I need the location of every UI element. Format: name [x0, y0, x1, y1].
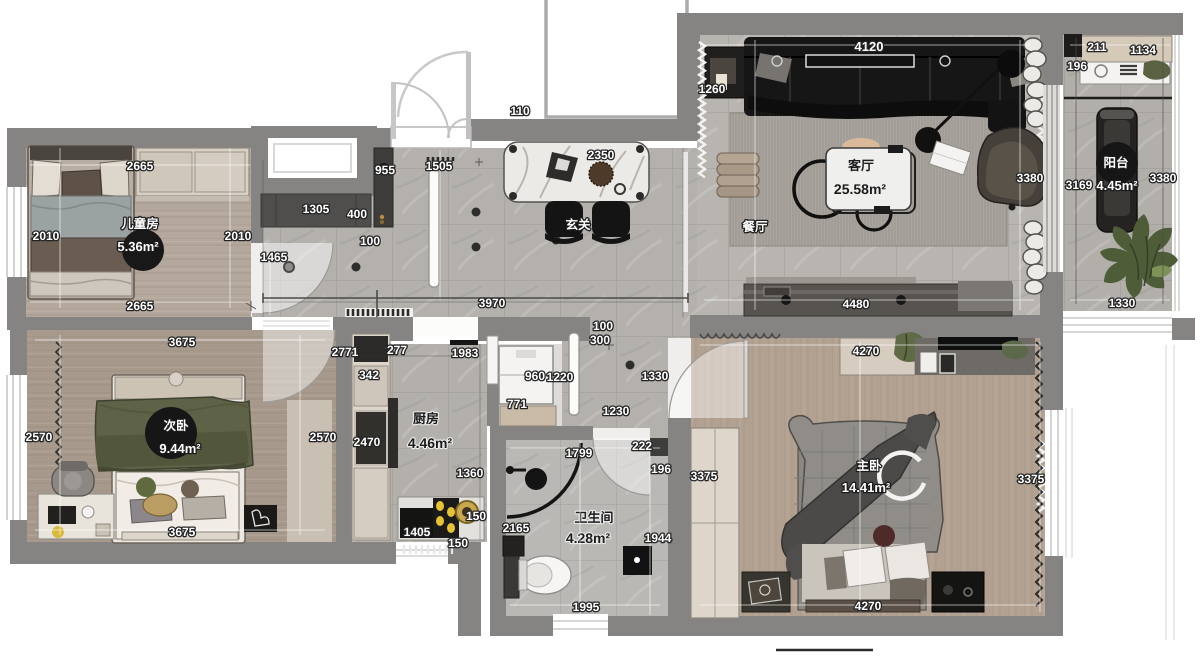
svg-text:2665: 2665: [127, 299, 154, 313]
svg-text:次卧: 次卧: [163, 419, 189, 433]
svg-text:3970: 3970: [479, 296, 506, 310]
svg-text:1983: 1983: [452, 346, 479, 360]
svg-text:2010: 2010: [33, 229, 60, 243]
svg-text:4.46m²: 4.46m²: [408, 435, 453, 451]
svg-text:2165: 2165: [503, 521, 530, 535]
svg-text:3375: 3375: [691, 469, 718, 483]
svg-text:3169: 3169: [1066, 178, 1093, 192]
svg-text:1305: 1305: [303, 202, 330, 216]
svg-text:150: 150: [448, 536, 468, 550]
svg-text:1134: 1134: [1130, 43, 1156, 57]
svg-text:4.45m²: 4.45m²: [1096, 178, 1138, 193]
svg-text:4270: 4270: [853, 344, 880, 358]
svg-text:阳台: 阳台: [1103, 156, 1128, 170]
svg-text:2665: 2665: [127, 159, 154, 173]
svg-text:3380: 3380: [1150, 171, 1177, 185]
svg-text:1995: 1995: [573, 600, 600, 614]
svg-text:餐厅: 餐厅: [741, 220, 768, 234]
svg-text:4270: 4270: [855, 599, 882, 613]
svg-text:1360: 1360: [457, 466, 484, 480]
svg-text:2470: 2470: [354, 435, 381, 449]
svg-text:3375: 3375: [1018, 472, 1045, 486]
svg-text:1230: 1230: [603, 404, 630, 418]
svg-text:955: 955: [375, 163, 395, 177]
svg-text:25.58m²: 25.58m²: [834, 181, 886, 197]
svg-text:1465: 1465: [261, 250, 288, 264]
svg-text:2771: 2771: [332, 345, 359, 359]
svg-text:1405: 1405: [404, 525, 431, 539]
svg-text:2570: 2570: [310, 430, 337, 444]
svg-text:4120: 4120: [855, 39, 884, 54]
svg-text:14.41m²: 14.41m²: [842, 480, 891, 495]
svg-text:342: 342: [359, 368, 379, 382]
svg-text:277: 277: [387, 343, 407, 357]
svg-text:222: 222: [632, 439, 652, 453]
svg-text:2350: 2350: [588, 148, 615, 162]
svg-text:400: 400: [347, 207, 367, 221]
svg-text:1330: 1330: [642, 369, 669, 383]
svg-text:2570: 2570: [26, 430, 53, 444]
svg-text:1799: 1799: [566, 446, 593, 460]
svg-text:150: 150: [466, 509, 486, 523]
svg-text:110: 110: [510, 104, 530, 118]
svg-text:100: 100: [360, 234, 380, 248]
svg-text:4480: 4480: [843, 297, 870, 311]
svg-text:1330: 1330: [1109, 296, 1136, 310]
svg-text:5.36m²: 5.36m²: [117, 239, 159, 254]
svg-text:4.28m²: 4.28m²: [566, 530, 611, 546]
svg-text:儿童房: 儿童房: [120, 217, 159, 231]
svg-text:1505: 1505: [426, 159, 453, 173]
svg-text:厨房: 厨房: [413, 411, 439, 426]
svg-text:9.44m²: 9.44m²: [159, 441, 201, 456]
svg-text:玄关: 玄关: [565, 218, 591, 232]
svg-text:196: 196: [1067, 59, 1087, 73]
svg-text:100: 100: [593, 319, 613, 333]
svg-text:300: 300: [590, 333, 610, 347]
svg-text:3380: 3380: [1017, 171, 1044, 185]
svg-text:771: 771: [507, 397, 527, 411]
svg-text:211: 211: [1087, 40, 1107, 54]
svg-text:3675: 3675: [169, 335, 196, 349]
svg-text:3675: 3675: [169, 525, 196, 539]
svg-text:客厅: 客厅: [847, 158, 874, 173]
svg-text:2010: 2010: [225, 229, 252, 243]
svg-text:196: 196: [651, 462, 671, 476]
svg-text:1944: 1944: [645, 531, 672, 545]
svg-text:960: 960: [525, 369, 545, 383]
svg-text:1260: 1260: [699, 82, 726, 96]
svg-text:1220: 1220: [547, 370, 574, 384]
